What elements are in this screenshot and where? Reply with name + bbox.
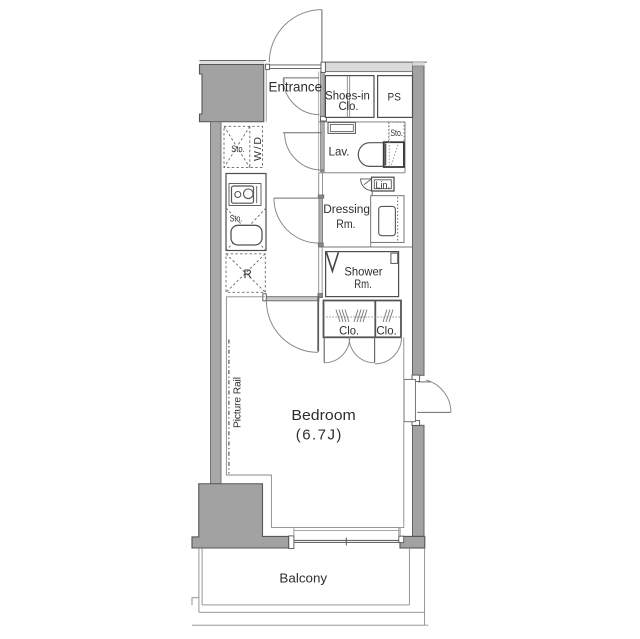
svg-text:Lin.: Lin. [375,180,390,191]
svg-text:Balcony: Balcony [279,571,327,585]
svg-text:Sto.: Sto. [390,128,403,139]
svg-text:Dressing: Dressing [323,202,370,216]
svg-text:Picture Rail: Picture Rail [232,377,243,428]
svg-text:Sto.: Sto. [231,144,245,154]
svg-text:Entrance: Entrance [269,79,323,94]
svg-text:W/D: W/D [252,137,264,161]
svg-text:Lav.: Lav. [329,145,350,159]
svg-text:Clo.: Clo. [376,325,396,338]
svg-text:Clo.: Clo. [339,99,359,113]
svg-text:PS: PS [388,91,401,103]
svg-text:Clo.: Clo. [339,325,359,338]
svg-text:(6.7J): (6.7J) [296,427,342,444]
svg-text:R: R [244,269,252,281]
svg-text:Rm.: Rm. [354,277,372,291]
svg-text:Rm.: Rm. [336,217,355,231]
svg-text:Bedroom: Bedroom [291,407,355,424]
